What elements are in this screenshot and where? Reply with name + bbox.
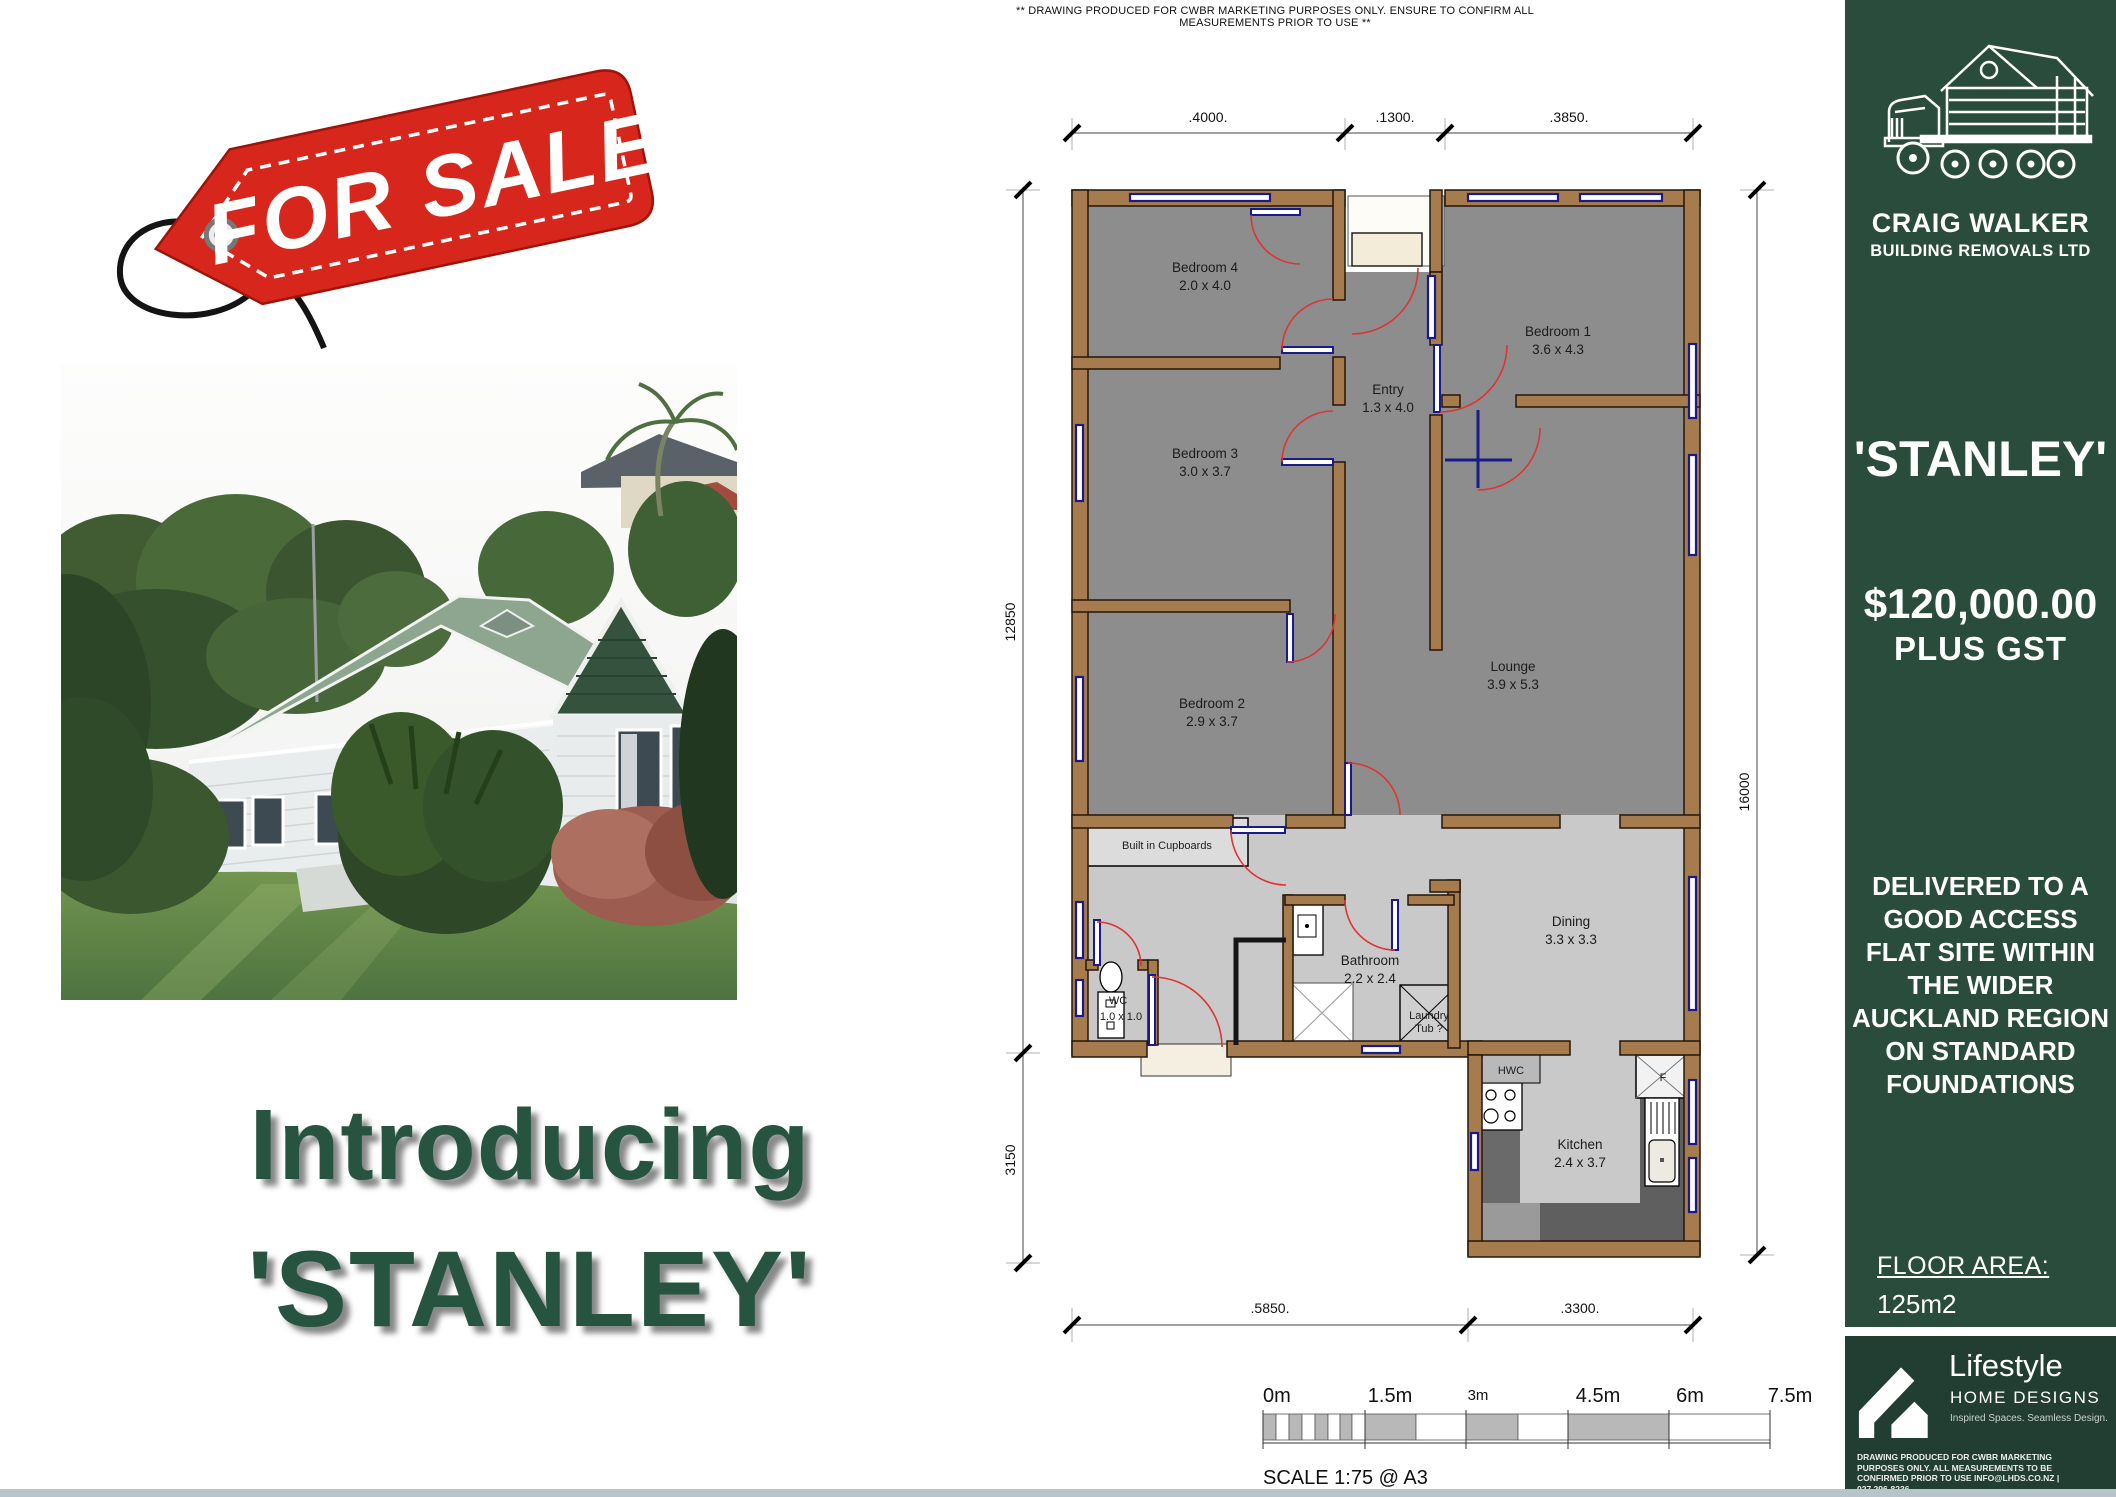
- label-laundry-tub: Tub ?: [1415, 1023, 1443, 1035]
- scale-7-5m: 7.5m: [1768, 1385, 1812, 1407]
- delivery-line: GOOD ACCESS: [1845, 903, 2116, 936]
- scale-3m: 3m: [1468, 1387, 1489, 1404]
- room-kitchen-dims: 2.4 x 3.7: [1554, 1155, 1606, 1170]
- room-kitchen: Kitchen: [1557, 1137, 1602, 1152]
- page-bottom-edge: [0, 1489, 2116, 1497]
- room-bedroom4-dims: 2.0 x 4.0: [1179, 278, 1231, 293]
- delivery-line: THE WIDER: [1845, 969, 2116, 1002]
- room-bedroom2: Bedroom 2: [1179, 696, 1245, 711]
- floor-plan: Bedroom 4 2.0 x 4.0 Bedroom 1 3.6 x 4.3 …: [1000, 100, 1816, 1497]
- scale-caption: SCALE 1:75 @ A3: [1263, 1467, 1428, 1489]
- delivery-line: AUCKLAND REGION: [1845, 1002, 2116, 1035]
- dim-bottom-2: .3300.: [1561, 1300, 1600, 1316]
- designer-fineprint: DRAWING PRODUCED FOR CWBR MARKETING PURP…: [1857, 1452, 2109, 1494]
- floor-area-value: 125m2: [1877, 1289, 1957, 1320]
- dim-left-upper: 12850: [1002, 602, 1018, 641]
- designer-type: HOME DESIGNS: [1950, 1388, 2100, 1408]
- room-entry-dims: 1.3 x 4.0: [1362, 400, 1414, 415]
- room-bedroom3: Bedroom 3: [1172, 446, 1238, 461]
- disclaimer-text: ** DRAWING PRODUCED FOR CWBR MARKETING P…: [975, 5, 1575, 29]
- lifestyle-logo: [1857, 1350, 1943, 1442]
- floor-area-label: FLOOR AREA:: [1877, 1252, 2049, 1281]
- label-built-in-cupboards: Built in Cupboards: [1122, 840, 1212, 852]
- dim-top-1: .4000.: [1189, 109, 1228, 125]
- room-lounge-dims: 3.9 x 5.3: [1487, 677, 1539, 692]
- brand-subtitle: BUILDING REMOVALS LTD: [1845, 242, 2116, 261]
- room-bathroom-dims: 2.2 x 2.4: [1344, 971, 1396, 986]
- room-bedroom3-dims: 3.0 x 3.7: [1179, 464, 1231, 479]
- fineprint-line: PURPOSES ONLY. ALL MEASUREMENTS TO BE: [1857, 1463, 2109, 1474]
- intro-property-name: 'STANLEY': [100, 1226, 960, 1351]
- flyer-page: ** DRAWING PRODUCED FOR CWBR MARKETING P…: [0, 0, 2116, 1497]
- room-bathroom: Bathroom: [1341, 953, 1400, 968]
- house-photo: [61, 364, 737, 1000]
- for-sale-tag: FOR SALE: [60, 28, 700, 363]
- dim-right: 16000: [1736, 772, 1752, 811]
- fineprint-line: DRAWING PRODUCED FOR CWBR MARKETING: [1857, 1452, 2109, 1463]
- dim-bottom-1: .5850.: [1251, 1300, 1290, 1316]
- scale-1-5m: 1.5m: [1368, 1385, 1412, 1407]
- label-laundry: Laundry: [1409, 1010, 1449, 1022]
- room-entry: Entry: [1372, 382, 1404, 397]
- property-name: 'STANLEY': [1845, 430, 2116, 488]
- room-bedroom4: Bedroom 4: [1172, 260, 1239, 275]
- dim-top-2: .1300.: [1376, 109, 1415, 125]
- room-bedroom2-dims: 2.9 x 3.7: [1186, 714, 1238, 729]
- scale-0m: 0m: [1263, 1385, 1291, 1407]
- price: $120,000.00: [1845, 580, 2116, 628]
- designer-name: Lifestyle: [1949, 1348, 2063, 1384]
- price-note: PLUS GST: [1845, 630, 2116, 668]
- delivery-text: DELIVERED TO A GOOD ACCESS FLAT SITE WIT…: [1845, 870, 2116, 1101]
- designer-block: Lifestyle HOME DESIGNS Inspired Spaces. …: [1845, 1336, 2116, 1497]
- label-hwc: HWC: [1498, 1065, 1524, 1077]
- room-bedroom1-dims: 3.6 x 4.3: [1532, 342, 1584, 357]
- craig-walker-logo: [1861, 16, 2101, 206]
- label-fridge: F: [1660, 1072, 1667, 1084]
- delivery-line: FLAT SITE WITHIN: [1845, 936, 2116, 969]
- sidebar-divider: [1845, 1327, 2116, 1336]
- brand-name: CRAIG WALKER: [1845, 208, 2116, 239]
- dim-left-lower: 3150: [1002, 1144, 1018, 1175]
- fineprint-line: CONFIRMED PRIOR TO USE INFO@LHDS.CO.NZ |: [1857, 1473, 2109, 1484]
- room-wc: WC: [1109, 995, 1127, 1007]
- room-dining-dims: 3.3 x 3.3: [1545, 932, 1597, 947]
- dim-top-3: .3850.: [1550, 109, 1589, 125]
- room-lounge: Lounge: [1490, 659, 1535, 674]
- sidebar: CRAIG WALKER BUILDING REMOVALS LTD 'STAN…: [1845, 0, 2116, 1497]
- room-bedroom1: Bedroom 1: [1525, 324, 1591, 339]
- intro-heading: Introducing: [100, 1088, 960, 1203]
- delivery-line: FOUNDATIONS: [1845, 1068, 2116, 1101]
- room-wc-dims: 1.0 x 1.0: [1100, 1011, 1142, 1023]
- room-dining: Dining: [1552, 914, 1590, 929]
- scale-6m: 6m: [1676, 1385, 1704, 1407]
- scale-4-5m: 4.5m: [1576, 1385, 1620, 1407]
- scale-bar: 0m 1.5m 3m 4.5m 6m 7.5m SCALE 1:75 @ A3: [1263, 1385, 1812, 1489]
- delivery-line: ON STANDARD: [1845, 1035, 2116, 1068]
- designer-tagline: Inspired Spaces. Seamless Design.: [1950, 1413, 2108, 1424]
- delivery-line: DELIVERED TO A: [1845, 870, 2116, 903]
